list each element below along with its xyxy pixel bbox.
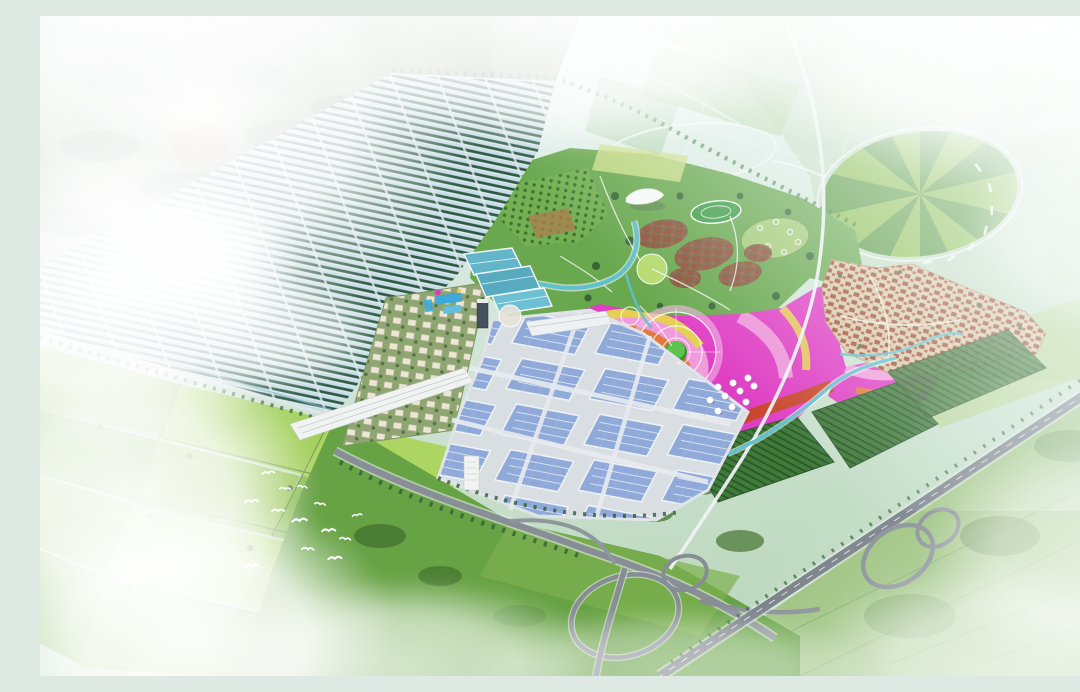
dome-tent [729, 404, 736, 411]
office-tower [477, 299, 488, 328]
logistics-tower [464, 456, 479, 490]
dome-tent [722, 393, 729, 400]
dome-tent [730, 380, 737, 387]
scene-canvas [40, 16, 1080, 676]
dome-tent [743, 399, 750, 406]
dome-tent [707, 397, 714, 404]
dome-tent [745, 375, 752, 382]
aerial-rendering-stage: Bird's-eye architectural rendering: a va… [40, 16, 1080, 676]
plaza-circle [499, 305, 521, 327]
dome-tent [715, 408, 722, 415]
dome-tent [751, 383, 758, 390]
dome-tent [737, 388, 744, 395]
dome-tent [715, 384, 722, 391]
